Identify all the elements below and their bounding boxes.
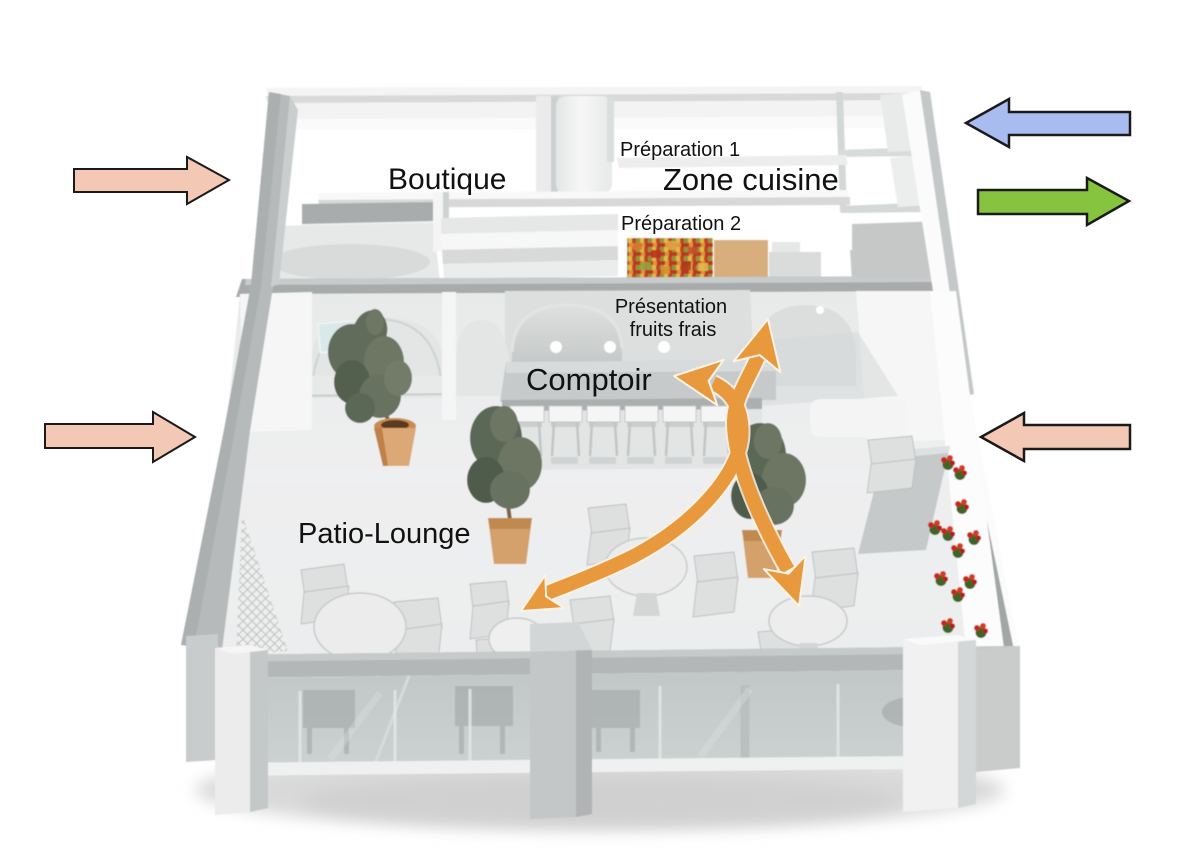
svg-text:Boutique: Boutique bbox=[388, 163, 506, 196]
svg-text:Patio-Lounge: Patio-Lounge bbox=[298, 518, 471, 550]
svg-text:Comptoir: Comptoir bbox=[526, 362, 652, 397]
svg-text:Préparation 1: Préparation 1 bbox=[620, 139, 740, 161]
svg-text:fruits frais: fruits frais bbox=[630, 319, 717, 341]
svg-text:Zone cuisine: Zone cuisine bbox=[663, 162, 839, 197]
svg-text:Présentation: Présentation bbox=[615, 296, 727, 318]
svg-text:Préparation 2: Préparation 2 bbox=[621, 213, 741, 235]
